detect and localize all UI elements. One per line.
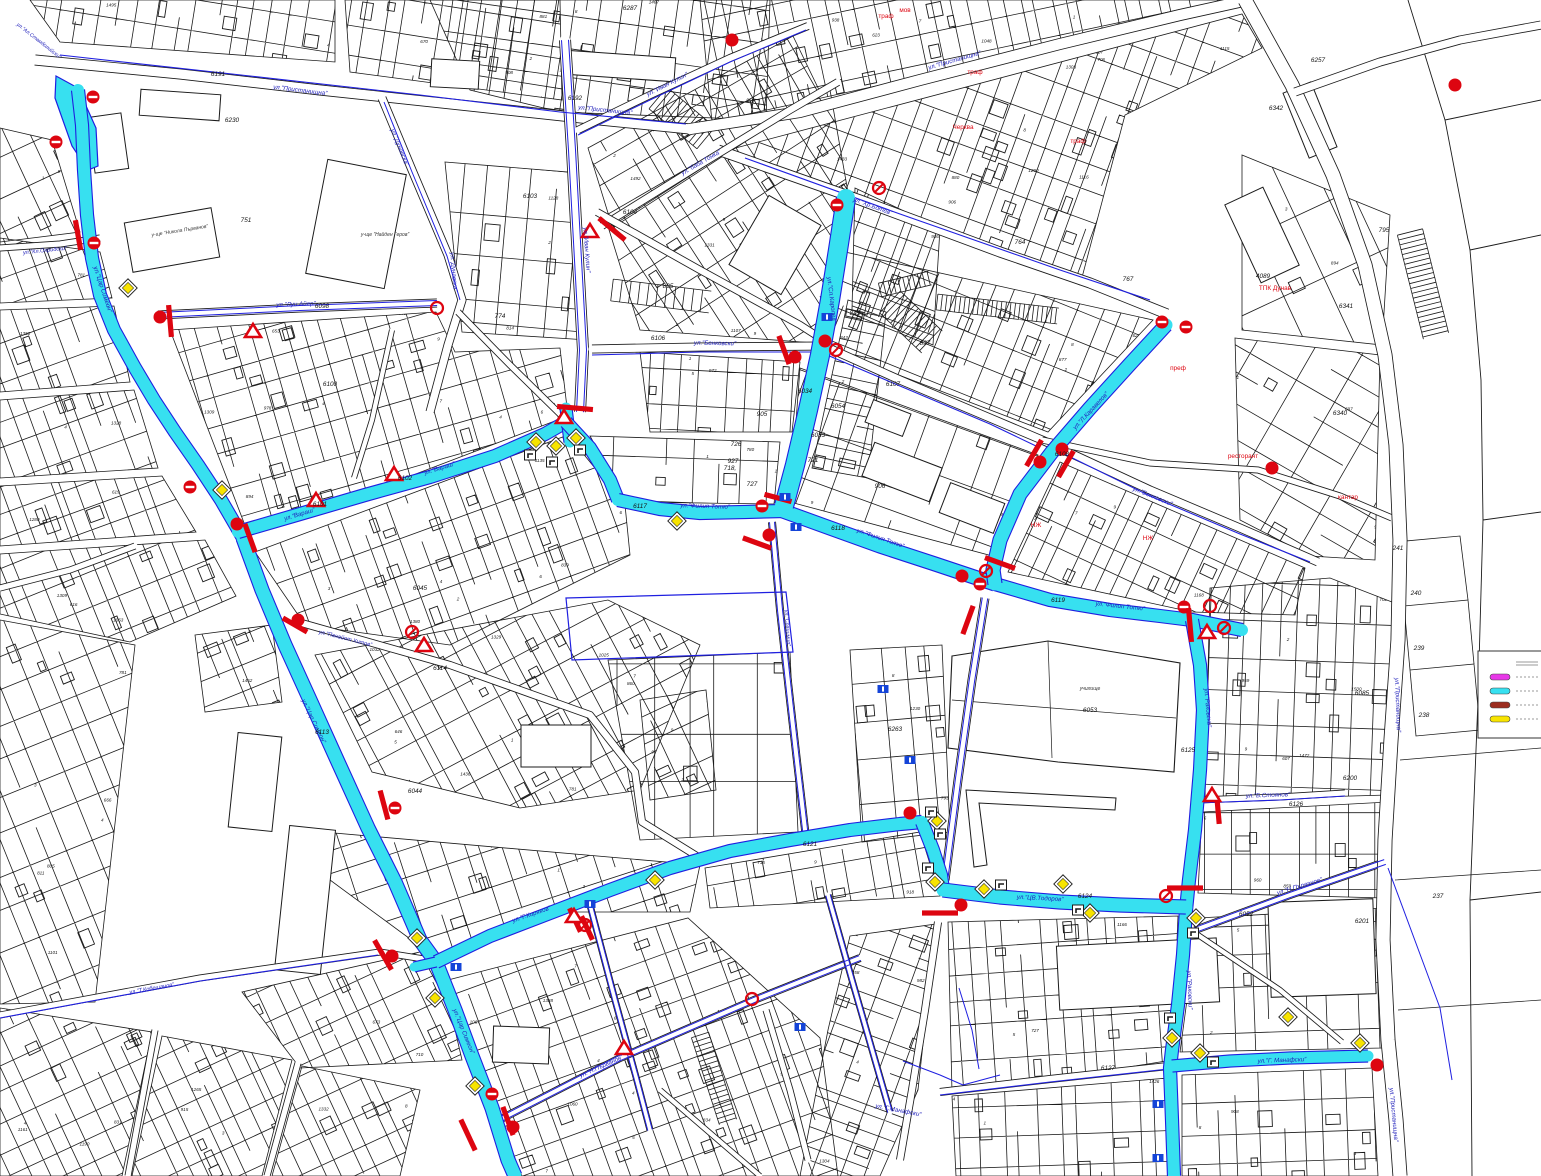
svg-text:9: 9: [814, 860, 817, 865]
svg-text:6: 6: [541, 410, 544, 415]
svg-text:9: 9: [58, 169, 61, 174]
svg-text:1: 1: [676, 322, 679, 327]
svg-text:1: 1: [1073, 14, 1076, 19]
svg-text:у-ще ”Найден Геров”: у-ще ”Найден Геров”: [360, 231, 410, 238]
svg-text:774: 774: [495, 313, 506, 320]
svg-text:7: 7: [633, 673, 636, 678]
svg-text:4: 4: [499, 415, 502, 420]
svg-text:653: 653: [272, 329, 280, 334]
svg-text:6127: 6127: [1101, 1065, 1116, 1072]
svg-text:764: 764: [1015, 239, 1026, 246]
svg-text:843: 843: [840, 335, 848, 340]
svg-text:1161: 1161: [18, 1127, 28, 1132]
svg-text:972: 972: [709, 368, 717, 373]
svg-text:9: 9: [671, 727, 674, 732]
svg-text:1107: 1107: [731, 328, 741, 333]
svg-text:6108: 6108: [1055, 451, 1070, 458]
svg-text:238: 238: [1418, 712, 1430, 719]
svg-text:преф: преф: [1170, 365, 1186, 372]
svg-text:4: 4: [64, 424, 67, 429]
svg-text:2: 2: [529, 56, 533, 61]
svg-text:6121: 6121: [803, 841, 818, 848]
svg-text:811: 811: [37, 871, 45, 876]
svg-text:623: 623: [872, 33, 880, 38]
svg-text:6191: 6191: [211, 71, 226, 78]
svg-text:240: 240: [1410, 590, 1422, 597]
svg-text:6033: 6033: [811, 432, 826, 439]
svg-text:6200: 6200: [1343, 775, 1358, 782]
svg-text:619: 619: [112, 490, 120, 495]
svg-text:1048: 1048: [981, 39, 992, 44]
svg-text:6103: 6103: [523, 193, 538, 200]
svg-text:3: 3: [34, 782, 37, 787]
svg-text:721: 721: [808, 457, 819, 464]
svg-text:795: 795: [1379, 227, 1390, 234]
svg-text:905: 905: [757, 411, 768, 418]
svg-text:1067: 1067: [470, 1020, 481, 1025]
svg-text:781: 781: [569, 786, 577, 791]
svg-text:6: 6: [620, 510, 623, 515]
svg-text:4: 4: [953, 1097, 956, 1102]
svg-text:646: 646: [395, 729, 403, 734]
svg-text:780: 780: [747, 447, 755, 452]
svg-text:6: 6: [1204, 815, 1207, 820]
svg-text:1166: 1166: [1117, 922, 1127, 927]
svg-text:7: 7: [574, 964, 577, 969]
svg-text:727: 727: [1031, 1028, 1039, 1033]
svg-text:1331: 1331: [705, 243, 716, 248]
svg-text:4: 4: [856, 1059, 859, 1064]
svg-text:3: 3: [328, 586, 331, 591]
svg-text:5: 5: [394, 739, 397, 744]
svg-text:6053: 6053: [1083, 707, 1098, 714]
svg-text:793: 793: [941, 796, 949, 801]
svg-text:5: 5: [1013, 1032, 1016, 1037]
svg-text:6085: 6085: [1355, 690, 1370, 697]
svg-text:6124: 6124: [1078, 893, 1093, 900]
svg-text:960: 960: [1254, 877, 1262, 882]
svg-text:1: 1: [984, 1121, 987, 1126]
svg-text:ТПК Дунав: ТПК Дунав: [1259, 285, 1292, 292]
svg-text:3: 3: [583, 884, 586, 889]
svg-text:880: 880: [952, 175, 960, 180]
svg-text:894: 894: [246, 494, 254, 499]
svg-text:2: 2: [680, 777, 684, 782]
svg-text:1380: 1380: [410, 619, 421, 624]
svg-text:4: 4: [322, 401, 325, 406]
svg-text:Черква: Черква: [952, 124, 973, 131]
svg-text:2: 2: [1209, 1030, 1213, 1035]
svg-text:4: 4: [440, 579, 443, 584]
svg-text:781: 781: [119, 670, 127, 675]
svg-text:1304: 1304: [819, 1158, 830, 1163]
svg-text:ресторант: ресторант: [1228, 453, 1258, 460]
svg-text:982: 982: [917, 978, 925, 983]
svg-text:1462: 1462: [242, 678, 253, 683]
svg-text:училище: училище: [1079, 686, 1101, 692]
svg-text:траф: траф: [878, 13, 893, 20]
svg-text:4: 4: [597, 1058, 600, 1063]
svg-text:237: 237: [1432, 893, 1444, 900]
svg-text:1472: 1472: [1299, 753, 1310, 758]
svg-text:1328: 1328: [111, 421, 122, 426]
svg-text:3: 3: [1285, 207, 1288, 212]
svg-text:6100: 6100: [323, 381, 338, 388]
svg-text:6257: 6257: [1311, 57, 1326, 64]
svg-text:7: 7: [1075, 510, 1078, 515]
svg-text:6102: 6102: [398, 475, 413, 482]
svg-text:6340: 6340: [1333, 410, 1348, 417]
svg-text:2: 2: [841, 379, 845, 384]
svg-text:666: 666: [104, 798, 112, 803]
svg-text:4: 4: [101, 817, 104, 822]
svg-text:4: 4: [327, 43, 330, 48]
svg-text:6101: 6101: [313, 501, 328, 508]
svg-text:траф: траф: [1070, 138, 1085, 145]
svg-text:2: 2: [1286, 637, 1290, 642]
svg-text:978: 978: [264, 405, 272, 410]
svg-text:1116: 1116: [1079, 174, 1089, 179]
svg-text:7: 7: [919, 19, 922, 24]
svg-text:3: 3: [1354, 1151, 1357, 1156]
svg-text:мов: мов: [899, 7, 911, 14]
svg-text:1492: 1492: [630, 176, 641, 181]
svg-text:805: 805: [47, 863, 55, 868]
svg-text:1426: 1426: [1149, 1079, 1160, 1084]
svg-text:670: 670: [420, 39, 428, 44]
svg-text:751: 751: [241, 217, 252, 224]
svg-text:877: 877: [1059, 357, 1067, 362]
svg-text:673: 673: [373, 1019, 381, 1024]
svg-text:9: 9: [811, 500, 814, 505]
svg-text:2: 2: [612, 153, 616, 158]
svg-text:834: 834: [703, 1118, 711, 1123]
svg-text:927: 927: [728, 458, 739, 465]
svg-text:8: 8: [575, 9, 578, 14]
svg-text:5: 5: [1237, 928, 1240, 933]
svg-text:908: 908: [505, 70, 513, 75]
svg-text:1135: 1135: [535, 458, 545, 463]
svg-text:1230: 1230: [910, 706, 921, 711]
svg-text:814: 814: [506, 326, 514, 331]
svg-text:831: 831: [114, 1120, 122, 1125]
svg-text:8: 8: [892, 673, 895, 678]
svg-text:6119: 6119: [1051, 597, 1065, 604]
svg-text:918: 918: [906, 890, 914, 895]
svg-text:6045: 6045: [413, 585, 428, 592]
svg-text:715: 715: [757, 860, 765, 865]
svg-text:6044: 6044: [408, 788, 423, 795]
svg-text:710: 710: [416, 1052, 424, 1057]
svg-text:241: 241: [1392, 545, 1404, 552]
svg-text:718,: 718,: [724, 465, 737, 472]
svg-text:траф: траф: [967, 69, 982, 76]
svg-text:9: 9: [1114, 504, 1117, 509]
svg-text:1190: 1190: [80, 1142, 90, 1147]
svg-text:3: 3: [222, 1131, 225, 1136]
svg-text:616: 616: [70, 602, 78, 607]
svg-text:1309: 1309: [204, 409, 215, 414]
svg-text:5: 5: [248, 629, 251, 634]
svg-text:781: 781: [77, 273, 85, 278]
svg-text:НЖ: НЖ: [1031, 522, 1042, 529]
svg-text:6118: 6118: [831, 525, 845, 532]
svg-text:6034: 6034: [798, 388, 813, 395]
svg-text:6342: 6342: [1269, 105, 1284, 112]
svg-text:3: 3: [751, 70, 754, 75]
svg-text:1495: 1495: [106, 2, 117, 7]
svg-text:1115: 1115: [1220, 46, 1230, 51]
svg-text:7: 7: [545, 1169, 548, 1174]
svg-text:6107: 6107: [886, 381, 901, 388]
svg-text:726: 726: [731, 441, 742, 448]
svg-text:6192: 6192: [568, 95, 583, 102]
svg-text:6287: 6287: [623, 5, 638, 12]
svg-text:9: 9: [754, 331, 757, 336]
svg-text:906: 906: [948, 200, 956, 205]
svg-text:1350: 1350: [20, 331, 31, 336]
svg-text:1303: 1303: [1066, 64, 1077, 69]
svg-text:607: 607: [1282, 756, 1290, 761]
svg-text:5: 5: [692, 371, 695, 376]
svg-text:9: 9: [437, 337, 440, 342]
svg-text:239: 239: [1413, 645, 1425, 652]
svg-text:6054: 6054: [831, 403, 846, 410]
svg-text:6052: 6052: [1239, 911, 1254, 918]
svg-text:6263: 6263: [888, 726, 903, 733]
svg-text:6: 6: [539, 574, 542, 579]
svg-text:2: 2: [547, 240, 551, 245]
svg-text:6117: 6117: [633, 503, 647, 510]
svg-text:4: 4: [632, 1091, 635, 1096]
svg-text:1467: 1467: [649, 0, 660, 5]
svg-text:8: 8: [1199, 1125, 1202, 1130]
svg-text:4: 4: [1034, 517, 1037, 522]
svg-text:915: 915: [181, 1107, 189, 1112]
svg-text:1168: 1168: [1194, 592, 1204, 597]
svg-text:1: 1: [706, 454, 709, 459]
svg-text:845: 845: [850, 310, 861, 317]
svg-text:959: 959: [1242, 678, 1250, 683]
svg-text:1329: 1329: [491, 635, 502, 640]
svg-text:805: 805: [663, 283, 674, 290]
svg-text:1128: 1128: [548, 195, 558, 200]
svg-text:кантар: кантар: [1338, 494, 1358, 501]
svg-text:7: 7: [440, 398, 443, 403]
svg-text:1101: 1101: [48, 950, 58, 955]
svg-text:1290: 1290: [1028, 168, 1039, 173]
svg-text:6126: 6126: [1289, 801, 1304, 808]
svg-text:2: 2: [456, 596, 460, 601]
svg-text:1280: 1280: [29, 517, 40, 522]
svg-text:6125: 6125: [1181, 747, 1196, 754]
svg-text:1338: 1338: [543, 998, 554, 1003]
svg-text:706: 706: [1097, 57, 1105, 62]
svg-text:ул.”Бенковски”: ул.”Бенковски”: [693, 340, 737, 348]
svg-text:2: 2: [1064, 367, 1068, 372]
svg-text:1: 1: [557, 868, 560, 873]
svg-text:6104: 6104: [623, 209, 638, 216]
svg-text:5: 5: [632, 1135, 635, 1140]
svg-text:1436: 1436: [460, 771, 471, 776]
svg-text:8: 8: [1071, 342, 1074, 347]
svg-text:6113: 6113: [315, 729, 329, 736]
svg-text:894: 894: [1331, 261, 1339, 266]
svg-text:9: 9: [651, 750, 654, 755]
svg-text:1063: 1063: [113, 617, 124, 622]
svg-text:6341: 6341: [1339, 303, 1354, 310]
svg-text:6106: 6106: [651, 335, 666, 342]
svg-text:1025: 1025: [599, 653, 610, 658]
svg-text:1265: 1265: [191, 1087, 202, 1092]
svg-text:1: 1: [689, 356, 692, 361]
svg-text:1332: 1332: [319, 1107, 330, 1112]
svg-text:8: 8: [405, 1104, 408, 1109]
svg-text:1060: 1060: [567, 1102, 578, 1107]
svg-text:9: 9: [1245, 747, 1248, 752]
svg-text:906: 906: [875, 483, 886, 490]
svg-text:881: 881: [540, 14, 548, 19]
svg-text:НЖ: НЖ: [1143, 535, 1154, 542]
svg-text:1309: 1309: [57, 593, 68, 598]
svg-text:1: 1: [511, 738, 514, 743]
svg-text:4: 4: [24, 1121, 27, 1126]
svg-text:6201: 6201: [1355, 918, 1370, 925]
svg-text:5: 5: [955, 289, 958, 294]
svg-text:4089: 4089: [1256, 273, 1271, 280]
svg-text:6114: 6114: [433, 665, 447, 672]
svg-text:ул.”Луи Айер”: ул.”Луи Айер”: [275, 300, 316, 308]
svg-text:ул.”Раковски”: ул.”Раковски”: [1185, 969, 1193, 1010]
svg-text:1: 1: [1237, 375, 1240, 380]
svg-text:6098: 6098: [315, 303, 330, 310]
svg-text:839: 839: [561, 562, 569, 567]
svg-text:727: 727: [747, 481, 758, 488]
svg-text:9: 9: [723, 217, 726, 222]
svg-text:6230: 6230: [225, 117, 240, 124]
svg-text:908: 908: [1231, 1109, 1239, 1114]
svg-text:767: 767: [1123, 276, 1134, 283]
svg-text:860: 860: [627, 681, 635, 686]
svg-text:837: 837: [920, 340, 931, 347]
svg-text:8: 8: [1023, 127, 1026, 132]
svg-text:938: 938: [832, 17, 840, 22]
svg-text:1: 1: [42, 176, 45, 181]
